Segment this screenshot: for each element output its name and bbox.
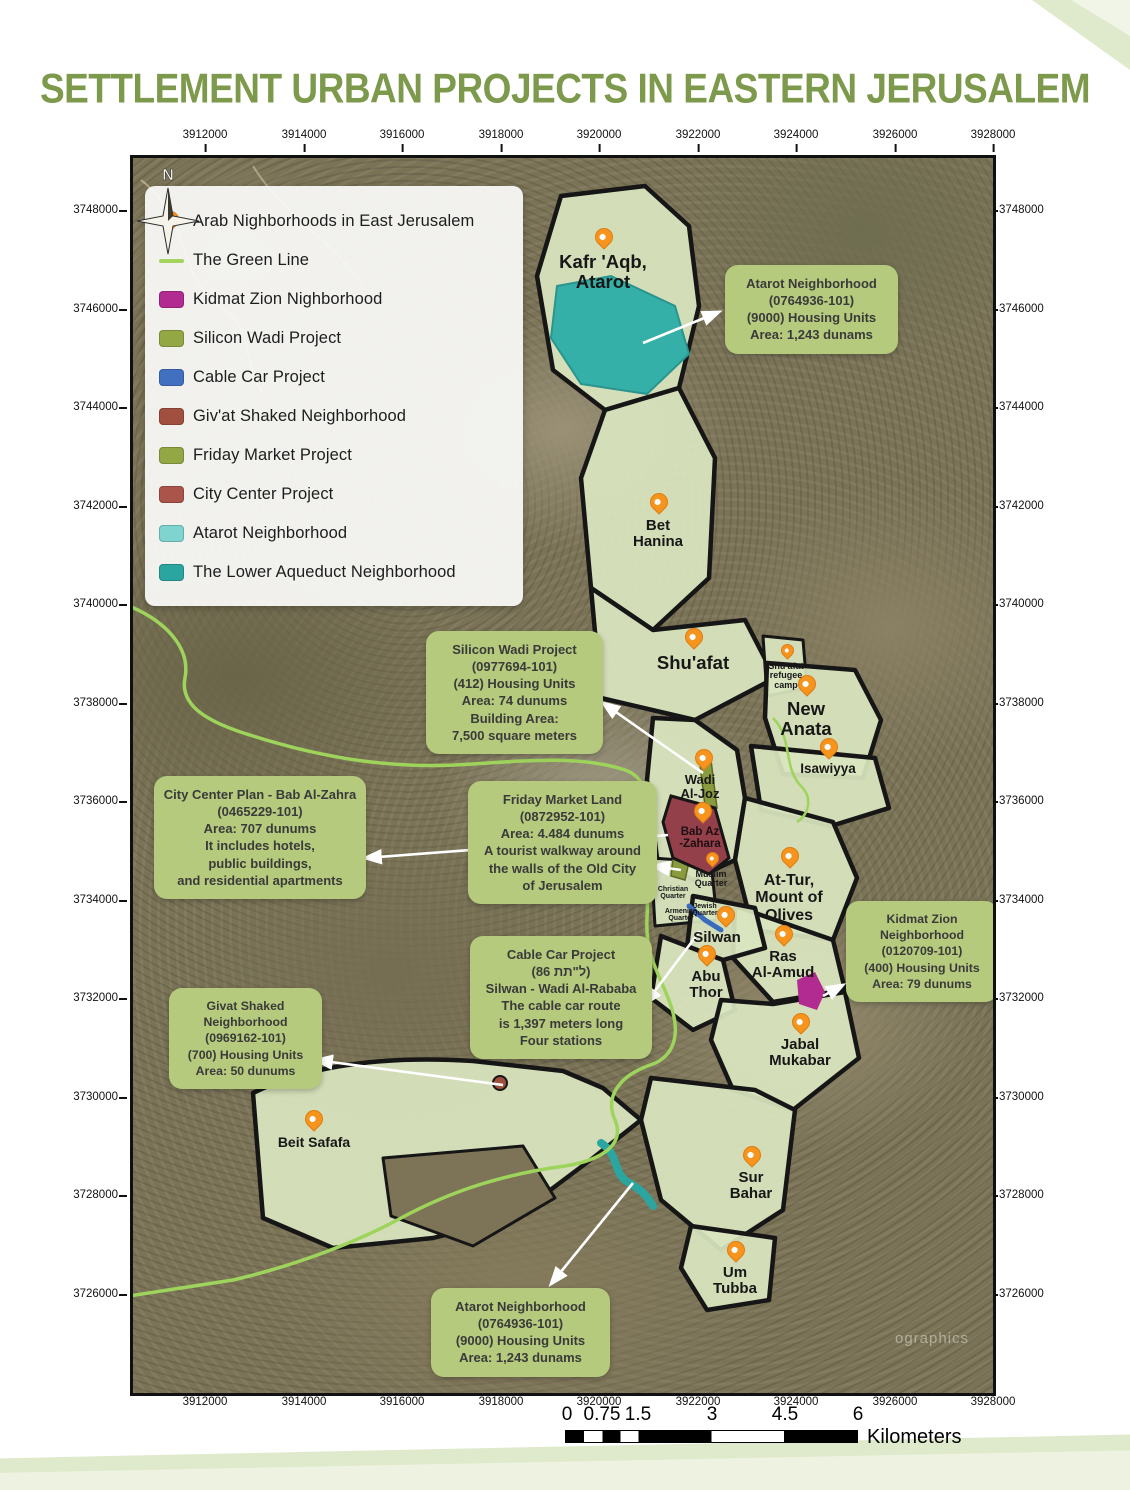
legend-label: Kidmat Zion Nighborhood [193,290,382,309]
callout-cable-car: Cable Car Project‭(86 תת"ל)‬ Silwan - Wa… [470,936,652,1059]
y-axis-label: 3740000 [999,598,1069,610]
x-axis-label: 3918000 [479,1396,524,1408]
callout-atarot-neighborhood-top: Atarot Neighborhood(0764936-101) (9000) … [725,265,898,354]
scale-tick-label: 3 [707,1404,718,1426]
map-label-new-anata: NewAnata [780,699,831,739]
legend-item-kidmat-zion: Kidmat Zion Nighborhood [145,280,523,319]
legend-item-city-center: City Center Project [145,475,523,514]
y-axis-label: 3748000 [999,204,1069,216]
map-label-beit-safafa: Beit Safafa [278,1135,350,1150]
map-label-jewish-quarter: JewishQuarter [692,903,717,918]
scale-bar: 0 0.75 1.5 3 4.5 6 Kilometers [565,1404,1005,1454]
y-axis-label: 3728000 [999,1189,1069,1201]
y-axis-label: 3734000 [52,894,118,906]
legend-item-silicon-wadi: Silicon Wadi Project [145,319,523,358]
map-label-kafr-aqb: Kafr 'Aqb,Atarot [559,252,647,292]
legend-item-lower-aqueduct: The Lower Aqueduct Neighborhood [145,553,523,592]
legend-label: Arab Nighborhoods in East Jerusalem [193,212,474,231]
y-axis-label: 3726000 [999,1288,1069,1300]
north-arrow: N [133,158,203,268]
y-axis-label: 3730000 [52,1091,118,1103]
scale-tick-label: 6 [853,1404,864,1426]
legend-label: Friday Market Project [193,446,352,465]
scale-tick-label: 0.75 [584,1404,621,1426]
x-axis-label: 3914000 [282,1396,327,1408]
color-swatch [159,486,184,503]
y-axis-label: 3726000 [52,1288,118,1300]
y-axis-label: 3744000 [52,401,118,413]
x-axis-label: 3916000 [380,129,425,141]
x-axis-label: 3926000 [873,129,918,141]
color-swatch [159,408,184,425]
legend-label: Cable Car Project [193,368,325,387]
north-label: N [162,167,174,184]
color-swatch [159,330,184,347]
y-axis-label: 3728000 [52,1189,118,1201]
map-label-bet-hanina: BetHanina [633,518,683,550]
x-axis-label: 3920000 [577,129,622,141]
color-swatch [159,525,184,542]
legend-label: Silicon Wadi Project [193,329,341,348]
y-axis-label: 3738000 [999,697,1069,709]
callout-kidmat-zion: Kidmat ZionNeighborhood (0120709-101)(40… [846,901,996,1002]
y-axis-label: 3736000 [52,795,118,807]
map-label-isawiyya: Isawiyya [800,762,856,777]
callout-city-center: City Center Plan - Bab Al-Zahra(0465229-… [154,776,366,899]
legend-label: The Green Line [193,251,309,270]
y-axis-label: 3742000 [52,500,118,512]
map-label-shuafat: Shu'afat [657,653,729,673]
settlement-map-poster: { "title": "SETTLEMENT URBAN PROJECTS IN… [0,0,1130,1490]
y-axis-label: 3734000 [999,894,1069,906]
y-axis-label: 3738000 [52,697,118,709]
legend-item-atarot: Atarot Neighborhood [145,514,523,553]
scale-bar-segments [565,1430,858,1443]
map-label-ras-al-amud: RasAl-Amud [752,949,815,981]
legend-label: Giv'at Shaked Neighborhood [193,407,406,426]
polygon-sur-bahar [641,1078,795,1250]
map-label-muslim-quarter: MuslimQuarter [695,870,728,889]
x-axis-label: 3928000 [971,129,1016,141]
y-axis-label: 3732000 [999,992,1069,1004]
x-axis-label: 3912000 [183,129,228,141]
color-swatch [159,369,184,386]
y-axis-label: 3740000 [52,598,118,610]
y-axis-label: 3742000 [999,500,1069,512]
scale-tick-label: 0 [562,1404,573,1426]
callout-friday-market: Friday Market Land(0872952-101) Area: 4.… [468,781,657,904]
map-label-refugee-camp: Shu'afatrefugeecamp [768,662,803,690]
x-axis-label: 3916000 [380,1396,425,1408]
map-canvas: Arab Nighborhoods in East Jerusalem The … [130,155,996,1396]
color-swatch [159,564,184,581]
x-axis-label: 3918000 [479,129,524,141]
map-label-bab-az-zahara: Bab Az-Zahara [679,826,721,851]
callout-atarot-neighborhood-bottom: Atarot Neighborhood(0764936-101) (9000) … [431,1288,610,1377]
compass-star-shade [168,188,173,221]
legend-label: Atarot Neighborhood [193,524,347,543]
lower-aqueduct-ribbon [601,1143,653,1206]
x-axis-label: 3922000 [676,129,721,141]
imagery-watermark: ographics [895,1330,969,1347]
y-axis-label: 3744000 [999,401,1069,413]
map-label-at-tur: At-Tur,Mount ofOlives [755,872,823,924]
callout-silicon-wadi: Silicon Wadi Project(0977694-101) (412) … [426,631,603,754]
page-title: SETTLEMENT URBAN PROJECTS IN EASTERN JER… [0,65,1130,112]
legend-label: City Center Project [193,485,333,504]
map-label-silwan: Silwan [693,930,741,946]
map-label-christian-quarter: ChristianQuarter [658,886,688,901]
arrow-atarot-bottom [551,1183,633,1284]
scale-tick-label: 1.5 [625,1404,651,1426]
map-label-sur-bahar: SurBahar [730,1170,773,1202]
scale-unit-label: Kilometers [867,1426,961,1449]
x-axis-label: 3924000 [774,129,819,141]
y-axis-label: 3748000 [52,204,118,216]
map-label-abu-thor: AbuThor [689,969,722,1001]
legend-item-cable-car: Cable Car Project [145,358,523,397]
y-axis-label: 3746000 [999,303,1069,315]
map-label-jabal-mukabar: JabalMukabar [769,1037,831,1069]
map-label-um-tubba: UmTubba [713,1265,757,1297]
y-axis-label: 3732000 [52,992,118,1004]
callout-givat-shaked: Givat ShakedNeighborhood (0969162-101)(7… [169,988,322,1089]
y-axis-label: 3746000 [52,303,118,315]
scale-tick-label: 4.5 [772,1404,798,1426]
legend-item-givat-shaked: Giv'at Shaked Neighborhood [145,397,523,436]
legend-label: The Lower Aqueduct Neighborhood [193,563,456,582]
color-swatch [159,447,184,464]
x-axis-label: 3912000 [183,1396,228,1408]
y-axis-label: 3736000 [999,795,1069,807]
x-axis-label: 3914000 [282,129,327,141]
map-label-wadi-al-joz: WadiAl-Joz [681,773,720,801]
legend-item-friday-market: Friday Market Project [145,436,523,475]
color-swatch [159,291,184,308]
y-axis-label: 3730000 [999,1091,1069,1103]
